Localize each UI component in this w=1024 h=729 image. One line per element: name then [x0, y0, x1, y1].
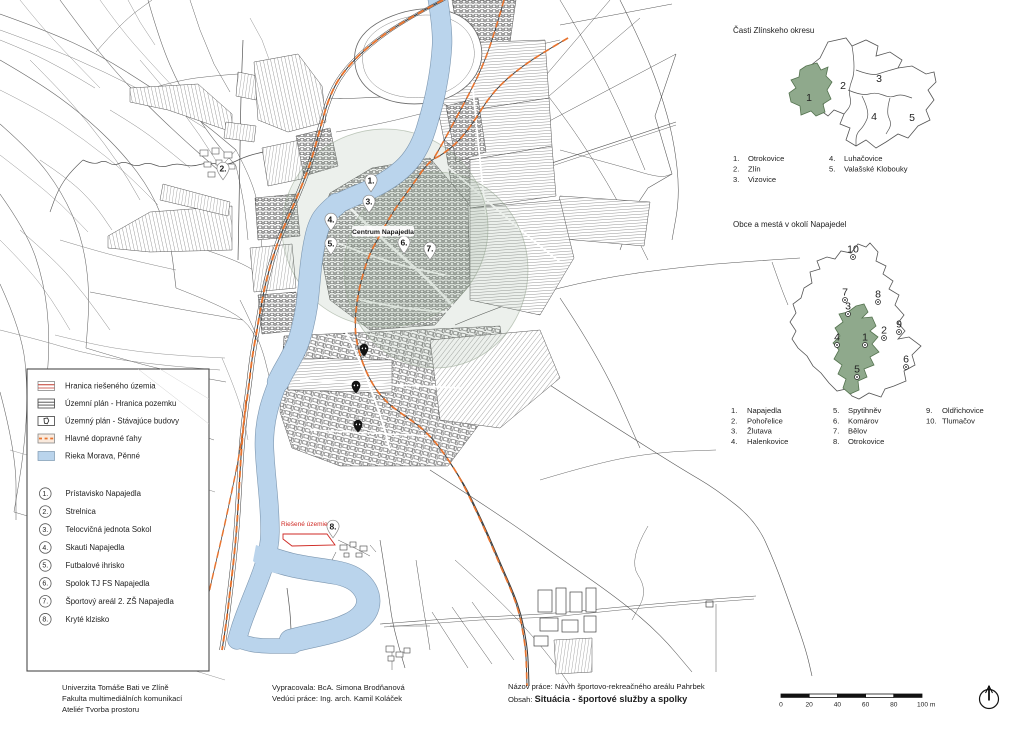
- svg-text:1: 1: [806, 92, 812, 104]
- svg-text:3.: 3.: [365, 196, 372, 206]
- svg-text:Rieka Morava, Pěnné: Rieka Morava, Pěnné: [65, 452, 140, 461]
- svg-text:3.: 3.: [733, 175, 739, 184]
- svg-text:2.: 2.: [731, 416, 737, 425]
- svg-text:2.: 2.: [733, 164, 739, 173]
- svg-text:Valašské Klobouky: Valašské Klobouky: [844, 164, 908, 173]
- svg-text:60: 60: [862, 702, 870, 709]
- svg-text:100 m: 100 m: [917, 702, 936, 709]
- svg-text:Prístavisko Napajedla: Prístavisko Napajedla: [66, 489, 142, 498]
- svg-text:2.: 2.: [219, 163, 226, 173]
- svg-text:40: 40: [834, 702, 842, 709]
- svg-text:Halenkovice: Halenkovice: [747, 437, 788, 446]
- svg-text:4.: 4.: [327, 214, 334, 224]
- svg-text:Otrokovice: Otrokovice: [848, 437, 884, 446]
- svg-text:2.: 2.: [42, 509, 48, 516]
- svg-text:Skauti Napajedla: Skauti Napajedla: [66, 543, 126, 552]
- svg-text:Zlín: Zlín: [748, 164, 761, 173]
- svg-text:Spolok TJ FS Napajedla: Spolok TJ FS Napajedla: [66, 579, 151, 588]
- svg-text:6.: 6.: [833, 416, 839, 425]
- svg-text:Bělov: Bělov: [848, 427, 867, 436]
- svg-text:Názov práce: Návrh športovo-re: Názov práce: Návrh športovo-rekreačného …: [508, 682, 705, 691]
- svg-text:Športový areál 2. ZŠ Napajedla: Športový areál 2. ZŠ Napajedla: [66, 597, 175, 606]
- svg-text:8.: 8.: [833, 437, 839, 446]
- svg-text:Napajedla: Napajedla: [747, 406, 782, 415]
- svg-text:Komárov: Komárov: [848, 416, 879, 425]
- svg-text:Kryté klzisko: Kryté klzisko: [66, 615, 110, 624]
- svg-text:4: 4: [871, 111, 877, 123]
- svg-text:Vypracovala: BcA. Simona Brod: Vypracovala: BcA. Simona Brodňanová: [272, 683, 405, 692]
- svg-text:4.: 4.: [42, 545, 48, 552]
- svg-text:Pohořelice: Pohořelice: [747, 416, 783, 425]
- svg-text:Futbalové ihrisko: Futbalové ihrisko: [66, 561, 126, 570]
- svg-text:7.: 7.: [833, 427, 839, 436]
- svg-text:10.: 10.: [926, 416, 937, 425]
- svg-text:3.: 3.: [42, 527, 48, 534]
- svg-text:7.: 7.: [426, 243, 433, 253]
- svg-text:20: 20: [806, 702, 814, 709]
- svg-text:Riešené územie: Riešené územie: [281, 521, 328, 528]
- svg-text:Otrokovice: Otrokovice: [748, 154, 784, 163]
- svg-text:5.: 5.: [829, 164, 835, 173]
- svg-text:Územný plán - Stávajúce budovy: Územný plán - Stávajúce budovy: [65, 417, 179, 426]
- svg-text:3: 3: [876, 73, 882, 85]
- svg-text:1: 1: [862, 332, 868, 344]
- svg-text:Územní plán - Hranica pozemku: Územní plán - Hranica pozemku: [65, 399, 176, 408]
- svg-text:5.: 5.: [833, 406, 839, 415]
- svg-text:5.: 5.: [327, 238, 334, 248]
- svg-text:Hranica riešeného územia: Hranica riešeného územia: [65, 382, 156, 391]
- svg-text:Obce a mestá v okolí Napajedel: Obce a mestá v okolí Napajedel: [733, 220, 847, 229]
- svg-text:2: 2: [881, 325, 887, 337]
- svg-text:1.: 1.: [367, 175, 374, 185]
- svg-text:Ateliér Tvorba prostoru: Ateliér Tvorba prostoru: [62, 705, 139, 714]
- svg-text:Obsah: Situácia - športové slu: Obsah: Situácia - športové služby a spol…: [508, 694, 688, 704]
- svg-text:9: 9: [896, 319, 902, 331]
- svg-text:Univerzita Tomáše Bati ve Zlín: Univerzita Tomáše Bati ve Zlíně: [62, 683, 169, 692]
- svg-text:Tlumačov: Tlumačov: [942, 416, 975, 425]
- svg-text:Fakulta multimediálních komuni: Fakulta multimediálních komunikací: [62, 694, 183, 703]
- svg-text:Centrum Napajedla: Centrum Napajedla: [352, 229, 414, 236]
- svg-text:5: 5: [909, 112, 915, 124]
- svg-text:0: 0: [779, 702, 783, 709]
- svg-text:7: 7: [842, 287, 848, 299]
- svg-text:Hlavné dopravné ťahy: Hlavné dopravné ťahy: [65, 434, 142, 443]
- svg-text:Luhačovice: Luhačovice: [844, 154, 882, 163]
- svg-text:Časti Zlínskeho okresu: Časti Zlínskeho okresu: [733, 26, 814, 35]
- svg-text:1.: 1.: [731, 406, 737, 415]
- svg-text:Vedúci práce: Ing. arch. Kamil: Vedúci práce: Ing. arch. Kamil Koláček: [272, 694, 402, 703]
- svg-text:2: 2: [840, 80, 846, 92]
- svg-text:Strelnica: Strelnica: [66, 507, 97, 516]
- svg-text:5.: 5.: [42, 563, 48, 570]
- svg-text:Oldřichovice: Oldřichovice: [942, 406, 984, 415]
- svg-text:7.: 7.: [42, 599, 48, 606]
- svg-text:4: 4: [834, 332, 840, 344]
- svg-text:Telocvičná jednota Sokol: Telocvičná jednota Sokol: [66, 525, 152, 534]
- svg-text:4.: 4.: [829, 154, 835, 163]
- svg-text:6.: 6.: [42, 581, 48, 588]
- svg-text:8.: 8.: [42, 617, 48, 624]
- svg-text:5: 5: [854, 364, 860, 376]
- svg-text:6.: 6.: [400, 237, 407, 247]
- svg-text:Žlutava: Žlutava: [747, 427, 773, 436]
- svg-text:6: 6: [903, 354, 909, 366]
- svg-text:4.: 4.: [731, 437, 737, 446]
- svg-text:9.: 9.: [926, 406, 932, 415]
- svg-text:1.: 1.: [733, 154, 739, 163]
- svg-text:8.: 8.: [329, 521, 336, 531]
- svg-text:80: 80: [890, 702, 898, 709]
- svg-text:3.: 3.: [731, 427, 737, 436]
- svg-text:8: 8: [875, 289, 881, 301]
- svg-text:Spytihněv: Spytihněv: [848, 406, 882, 415]
- svg-text:10: 10: [847, 244, 859, 256]
- svg-text:1.: 1.: [42, 491, 48, 498]
- svg-text:Vizovice: Vizovice: [748, 175, 776, 184]
